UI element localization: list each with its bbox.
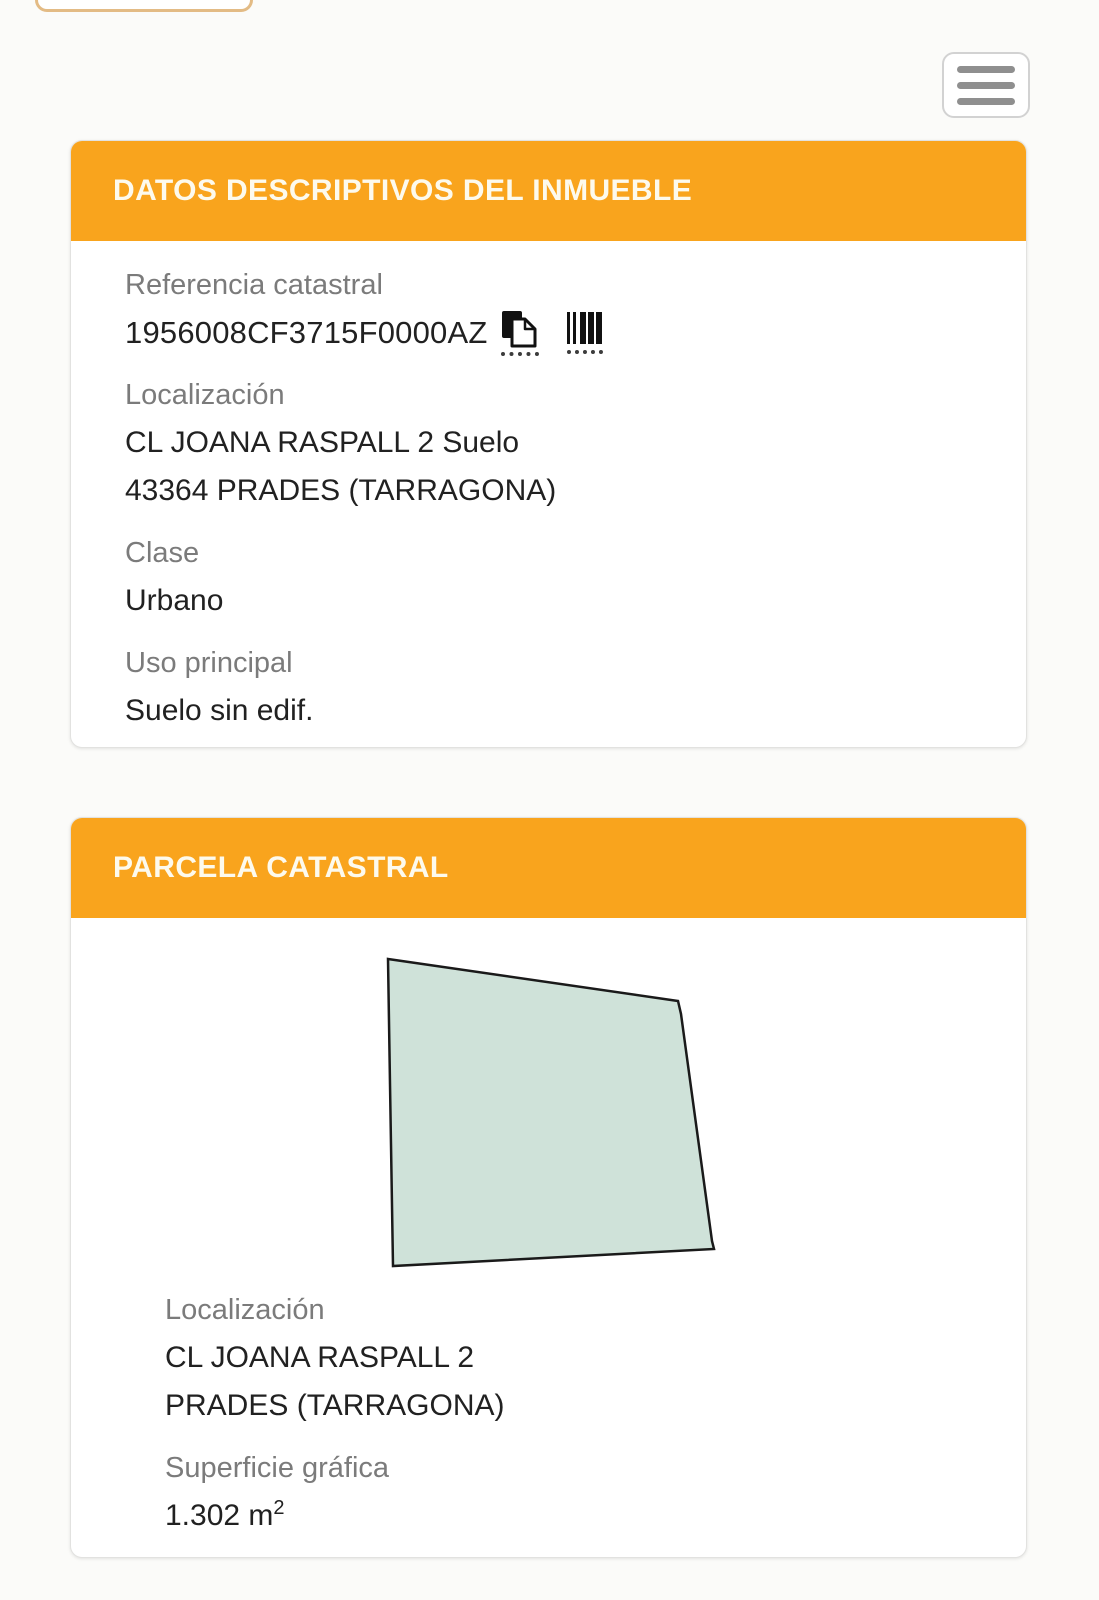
parcel-card-header: PARCELA CATASTRAL (71, 818, 1026, 918)
hamburger-bar (957, 98, 1015, 105)
barcode-icon (567, 312, 603, 346)
field-localizacion-parcela: Localización CL JOANA RASPALL 2 PRADES (… (165, 1286, 986, 1430)
top-left-cutoff-button[interactable] (35, 0, 253, 12)
location-line-2: 43364 PRADES (TARRAGONA) (125, 467, 986, 515)
reference-row: 1956008CF3715F0000AZ (125, 309, 986, 357)
field-label: Superficie gráfica (165, 1444, 986, 1492)
field-label: Uso principal (125, 639, 986, 687)
property-card-header: DATOS DESCRIPTIVOS DEL INMUEBLE (71, 141, 1026, 241)
property-card-title: DATOS DESCRIPTIVOS DEL INMUEBLE (113, 174, 692, 208)
field-label: Localización (165, 1286, 986, 1334)
hamburger-bar (957, 66, 1015, 73)
property-card-body: Referencia catastral 1956008CF3715F0000A… (71, 241, 1026, 735)
field-localizacion: Localización CL JOANA RASPALL 2 Suelo 43… (125, 371, 986, 515)
superficie-superscript: 2 (273, 1497, 284, 1519)
barcode-button[interactable] (567, 312, 603, 354)
parcel-map-image (331, 921, 751, 1281)
field-referencia: Referencia catastral 1956008CF3715F0000A… (125, 261, 986, 357)
property-card: DATOS DESCRIPTIVOS DEL INMUEBLE Referenc… (70, 140, 1027, 748)
superficie-number: 1.302 m (165, 1499, 273, 1532)
field-superficie: Superficie gráfica 1.302 m2 (165, 1444, 986, 1540)
copy-icon (501, 310, 539, 348)
field-label: Referencia catastral (125, 261, 986, 309)
copy-reference-button[interactable] (501, 310, 539, 356)
reference-value: 1956008CF3715F0000AZ (125, 309, 487, 357)
parcel-fields: Localización CL JOANA RASPALL 2 PRADES (… (71, 1286, 1026, 1540)
hamburger-bar (957, 82, 1015, 89)
parcel-map[interactable] (331, 921, 751, 1281)
field-clase: Clase Urbano (125, 529, 986, 625)
parcel-location-line-1: CL JOANA RASPALL 2 (165, 1334, 986, 1382)
location-line-1: CL JOANA RASPALL 2 Suelo (125, 419, 986, 467)
field-label: Localización (125, 371, 986, 419)
clase-value: Urbano (125, 577, 986, 625)
superficie-value: 1.302 m2 (165, 1492, 986, 1540)
parcel-polygon (388, 959, 714, 1266)
menu-button[interactable] (942, 52, 1030, 118)
parcel-location-line-2: PRADES (TARRAGONA) (165, 1382, 986, 1430)
field-uso-principal: Uso principal Suelo sin edif. (125, 639, 986, 735)
field-label: Clase (125, 529, 986, 577)
parcel-card: PARCELA CATASTRAL Localización CL JOANA … (70, 817, 1027, 1558)
parcel-card-title: PARCELA CATASTRAL (113, 851, 449, 885)
parcel-card-body: Localización CL JOANA RASPALL 2 PRADES (… (71, 921, 1026, 1540)
uso-value: Suelo sin edif. (125, 687, 986, 735)
